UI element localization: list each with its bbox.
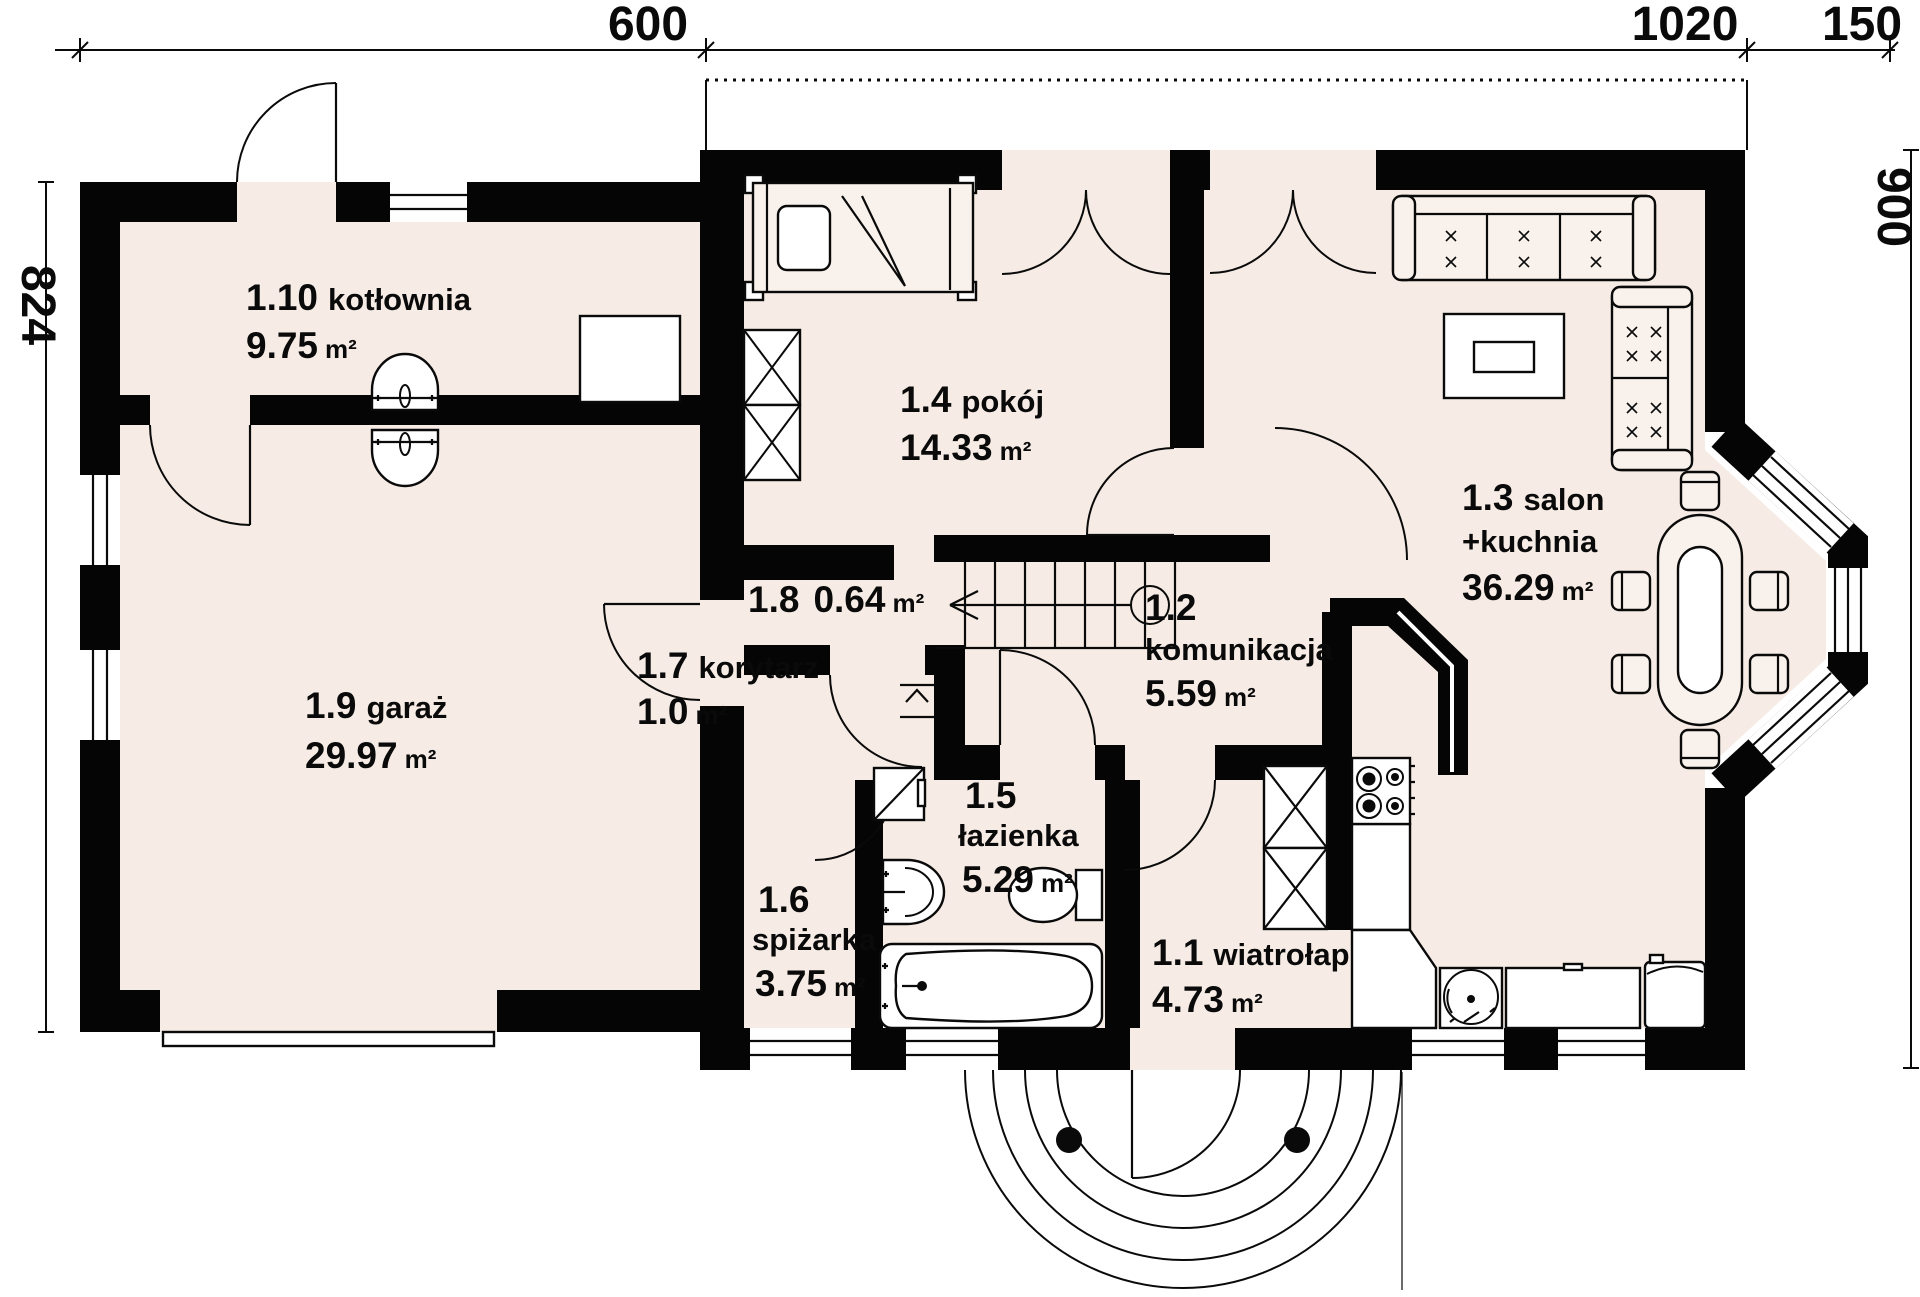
porch-column bbox=[1056, 1127, 1082, 1153]
stove bbox=[1352, 758, 1415, 824]
sofa-3seat bbox=[1393, 196, 1655, 280]
wardrobe-pokoj bbox=[744, 330, 800, 480]
coffee-table bbox=[1444, 314, 1564, 398]
window-kitchen-1 bbox=[1412, 1028, 1504, 1070]
window-kitchen-2 bbox=[1558, 1028, 1645, 1070]
bed bbox=[745, 175, 976, 300]
dining-table bbox=[1658, 515, 1742, 725]
washbasin bbox=[883, 860, 944, 924]
room-label-wiatrolap: 1.1wiatrołap bbox=[1152, 932, 1350, 973]
window-kotlownia bbox=[390, 182, 467, 222]
room-label-komunikacja: komunikacja bbox=[1145, 632, 1334, 667]
window-garage-left-1 bbox=[80, 475, 120, 565]
dim-left-824: 824 bbox=[11, 265, 64, 345]
washing-machine bbox=[874, 768, 925, 820]
dim-top-1020: 1020 bbox=[1632, 0, 1739, 51]
room-label-lazienka-num: 1.5 bbox=[965, 775, 1016, 816]
dim-top-150: 150 bbox=[1822, 0, 1902, 51]
garage-door-panel bbox=[163, 1032, 494, 1046]
room-label-korytarz: 1.7korytarz bbox=[637, 645, 819, 686]
porch-column bbox=[1284, 1127, 1310, 1153]
room-label-spizarka: spiżarka bbox=[752, 922, 877, 957]
room-label-salon-2: +kuchnia bbox=[1462, 524, 1598, 559]
window-spizarka bbox=[750, 1028, 851, 1070]
bathtub bbox=[880, 944, 1102, 1028]
sofa-2seat bbox=[1612, 287, 1692, 470]
room-label-garaz: 1.9garaż bbox=[305, 685, 447, 726]
wardrobe-wiatrolap bbox=[1264, 766, 1327, 929]
room-label-spizarka-num: 1.6 bbox=[758, 879, 809, 920]
room-label-lazienka: łazienka bbox=[958, 818, 1079, 853]
door-entrance bbox=[1132, 1070, 1240, 1178]
boiler bbox=[580, 316, 680, 402]
floor-plan: 600 1020 150 824 900 1.10kotłownia 9.75m… bbox=[0, 0, 1920, 1297]
fridge bbox=[1645, 955, 1705, 1028]
window-lazienka bbox=[906, 1028, 998, 1070]
door-kotlownia-exterior bbox=[237, 83, 336, 182]
room-label-pokoj: 1.4pokój bbox=[900, 379, 1044, 420]
dim-right-900: 900 bbox=[1867, 167, 1920, 247]
floor-plan-drawing: 600 1020 150 824 900 1.10kotłownia 9.75m… bbox=[0, 0, 1920, 1297]
room-label-komunikacja-num: 1.2 bbox=[1145, 587, 1196, 628]
window-garage-left-2 bbox=[80, 650, 120, 740]
entrance-steps bbox=[965, 1070, 1402, 1290]
dim-top-600: 600 bbox=[608, 0, 688, 51]
room-label-salon: 1.3salon bbox=[1462, 477, 1604, 518]
room-label-kotlownia: 1.10kotłownia bbox=[246, 277, 472, 318]
